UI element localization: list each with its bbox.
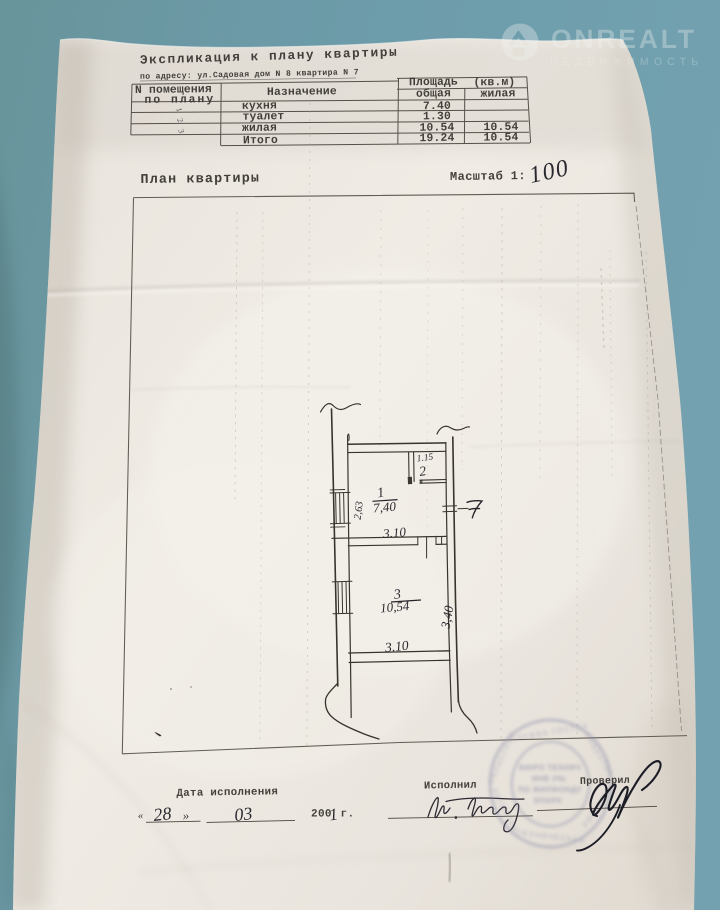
svg-text:Масштаб 1:: Масштаб 1: — [450, 169, 526, 184]
svg-text:10.54: 10.54 — [483, 132, 518, 144]
svg-text:2,63: 2,63 — [353, 501, 366, 521]
svg-text:общая: общая — [416, 87, 451, 100]
svg-text:жилая: жилая — [480, 88, 515, 100]
svg-text:План квартиры: План квартиры — [140, 172, 260, 188]
svg-text:ИНВ У№: ИНВ У№ — [532, 774, 566, 783]
svg-text:г.: г. — [341, 809, 355, 821]
svg-text:Назначение: Назначение — [267, 86, 337, 99]
svg-text:1.15: 1.15 — [416, 452, 434, 464]
svg-text:ПО ЖИЛФОНДУ: ПО ЖИЛФОНДУ — [518, 785, 582, 794]
svg-text:Дата исполнения: Дата исполнения — [176, 786, 278, 800]
svg-text:Исполнил: Исполнил — [424, 780, 477, 793]
svg-text:туалет: туалет — [242, 111, 284, 124]
svg-text:3.10: 3.10 — [383, 638, 409, 656]
svg-text:ЕПАРХ: ЕПАРХ — [534, 796, 562, 805]
svg-text:ONREALT: ONREALT — [551, 24, 697, 54]
svg-text:10,54: 10,54 — [379, 598, 410, 616]
svg-text:»: » — [182, 807, 190, 823]
svg-text:7,40: 7,40 — [372, 499, 396, 516]
svg-text:жилая: жилая — [242, 123, 277, 135]
svg-text:Итого: Итого — [243, 135, 278, 147]
svg-text:НЕДВИЖИМОСТЬ: НЕДВИЖИМОСТЬ — [550, 56, 703, 68]
svg-text:19.24: 19.24 — [419, 133, 454, 145]
svg-text:по плану: по плану — [144, 94, 215, 107]
svg-text:3.10: 3.10 — [381, 524, 406, 541]
svg-text:БЮРО ТЕХНИЧ: БЮРО ТЕХНИЧ — [519, 763, 581, 772]
